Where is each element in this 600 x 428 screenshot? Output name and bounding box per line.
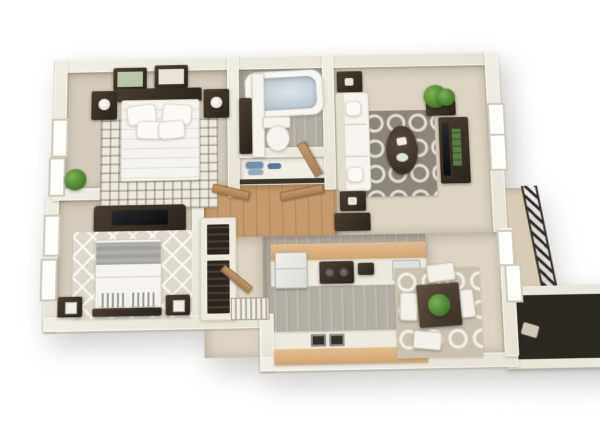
green-books	[452, 129, 463, 166]
kitchen-stove	[319, 261, 354, 284]
entry-louvered-door	[231, 297, 270, 320]
table-lamp	[98, 99, 110, 111]
picture-frame	[173, 300, 185, 313]
bathroom-vanity-cabinet	[239, 98, 252, 154]
bedroom2-footboard	[92, 307, 161, 317]
art-print-green	[117, 71, 143, 87]
table-decor	[345, 78, 354, 86]
coffee-table-tray	[396, 153, 408, 162]
dining-chair-bottom	[413, 330, 443, 351]
table-decor	[348, 197, 357, 205]
refrigerator	[275, 252, 308, 289]
sink-basin	[311, 334, 327, 347]
striped-pillow	[129, 292, 157, 307]
balcony-sliding-door-panel-2	[504, 264, 523, 303]
sofa-cushion-line	[345, 124, 367, 125]
bookshelf-books-top	[207, 224, 229, 254]
bedroom2-nightstand-left	[58, 297, 83, 318]
apartment-plan	[0, 3, 600, 428]
gray-blanket-band	[96, 242, 161, 265]
sheet-fold-line	[96, 276, 161, 278]
towel-stack-dark-blue	[267, 163, 281, 169]
bedroom2-tv	[112, 209, 168, 225]
stove-burner	[324, 267, 334, 277]
coffee-table-decor	[396, 137, 407, 146]
sofa-pillow	[347, 166, 363, 182]
bedroom1-nightstand-left	[91, 91, 117, 120]
bedroom1-nightstand-right	[204, 89, 230, 118]
sofa-cushion-line	[346, 156, 368, 157]
bedroom2-window-2	[40, 259, 58, 302]
living-room-window	[487, 103, 508, 171]
bedroom1-window-1	[51, 119, 69, 158]
living-desk-and-chair	[334, 213, 371, 232]
storage-item	[521, 322, 540, 339]
picture-frame	[65, 302, 77, 315]
living-sofa	[335, 92, 371, 191]
bedroom2-bed	[94, 239, 161, 313]
window-mullion	[490, 134, 504, 136]
tv-screen	[441, 123, 450, 176]
dining-chair-top	[426, 262, 457, 284]
bedroom2-window-1	[43, 215, 61, 257]
bedroom1-art-frame-2	[155, 65, 188, 88]
living-end-table-bottom	[340, 191, 367, 211]
bedroom1-window-2	[48, 157, 66, 197]
art-print-cream	[159, 69, 184, 85]
bathroom-vanity-counter	[251, 73, 265, 158]
bed-pillow	[158, 119, 186, 140]
kitchen-small-appliance	[358, 263, 375, 275]
sink-basin	[329, 334, 345, 347]
bedroom1-art-frame-1	[113, 68, 147, 91]
towel-stack-blue	[246, 161, 264, 168]
living-tv-console	[438, 117, 471, 184]
balcony-sliding-door-panel-1	[496, 230, 515, 266]
living-end-table-top	[337, 71, 363, 92]
floorplan-scene	[0, 0, 600, 428]
wall-bedroom1-right	[227, 56, 240, 197]
bedroom2-nightstand-right	[166, 295, 190, 316]
dining-chair-left	[399, 292, 418, 321]
table-lamp	[210, 97, 222, 109]
stove-burner	[339, 267, 349, 277]
sofa-pillow	[345, 101, 361, 117]
towel-stack-light-blue	[248, 169, 264, 175]
fridge-door-line	[276, 268, 306, 270]
striped-pillow	[99, 293, 127, 308]
